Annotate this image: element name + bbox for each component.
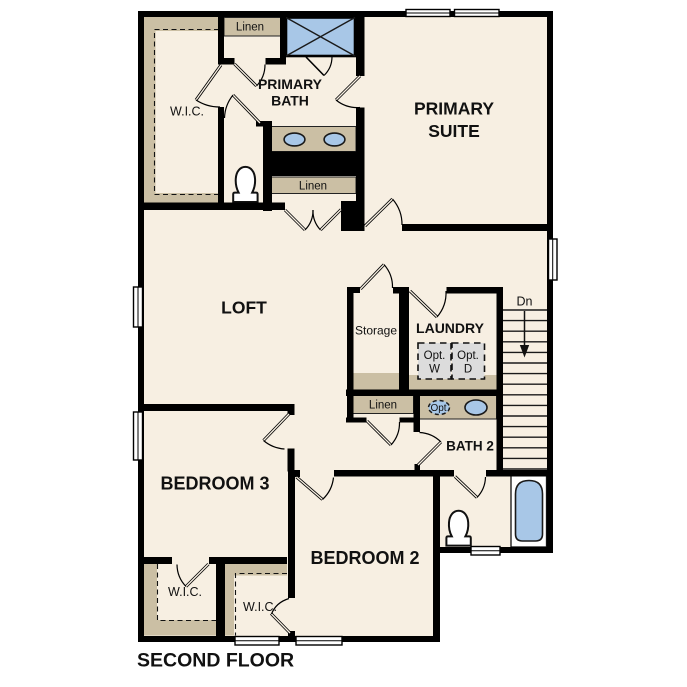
svg-text:Linen: Linen — [369, 400, 397, 412]
svg-text:Linen: Linen — [236, 22, 264, 34]
svg-text:LAUNDRY: LAUNDRY — [416, 320, 485, 336]
svg-text:BATH: BATH — [271, 93, 309, 109]
svg-text:PRIMARY: PRIMARY — [414, 99, 494, 119]
svg-text:Storage: Storage — [355, 324, 397, 338]
svg-text:Linen: Linen — [299, 181, 327, 193]
svg-text:W.I.C.: W.I.C. — [243, 600, 277, 614]
svg-text:LOFT: LOFT — [221, 298, 267, 318]
svg-text:BATH 2: BATH 2 — [446, 439, 494, 454]
svg-text:BEDROOM 2: BEDROOM 2 — [310, 548, 419, 568]
svg-text:SECOND FLOOR: SECOND FLOOR — [137, 650, 294, 672]
svg-text:Opt.: Opt. — [424, 350, 446, 362]
svg-text:W.I.C.: W.I.C. — [170, 105, 204, 119]
svg-text:D: D — [464, 364, 472, 376]
svg-text:Dn: Dn — [517, 295, 533, 309]
svg-text:W.I.C.: W.I.C. — [168, 585, 202, 599]
svg-text:Opt: Opt — [430, 403, 446, 414]
svg-text:Opt.: Opt. — [457, 350, 479, 362]
svg-text:PRIMARY: PRIMARY — [258, 76, 323, 92]
svg-text:W: W — [429, 364, 440, 376]
svg-text:SUITE: SUITE — [428, 121, 480, 141]
svg-text:BEDROOM 3: BEDROOM 3 — [160, 474, 269, 494]
